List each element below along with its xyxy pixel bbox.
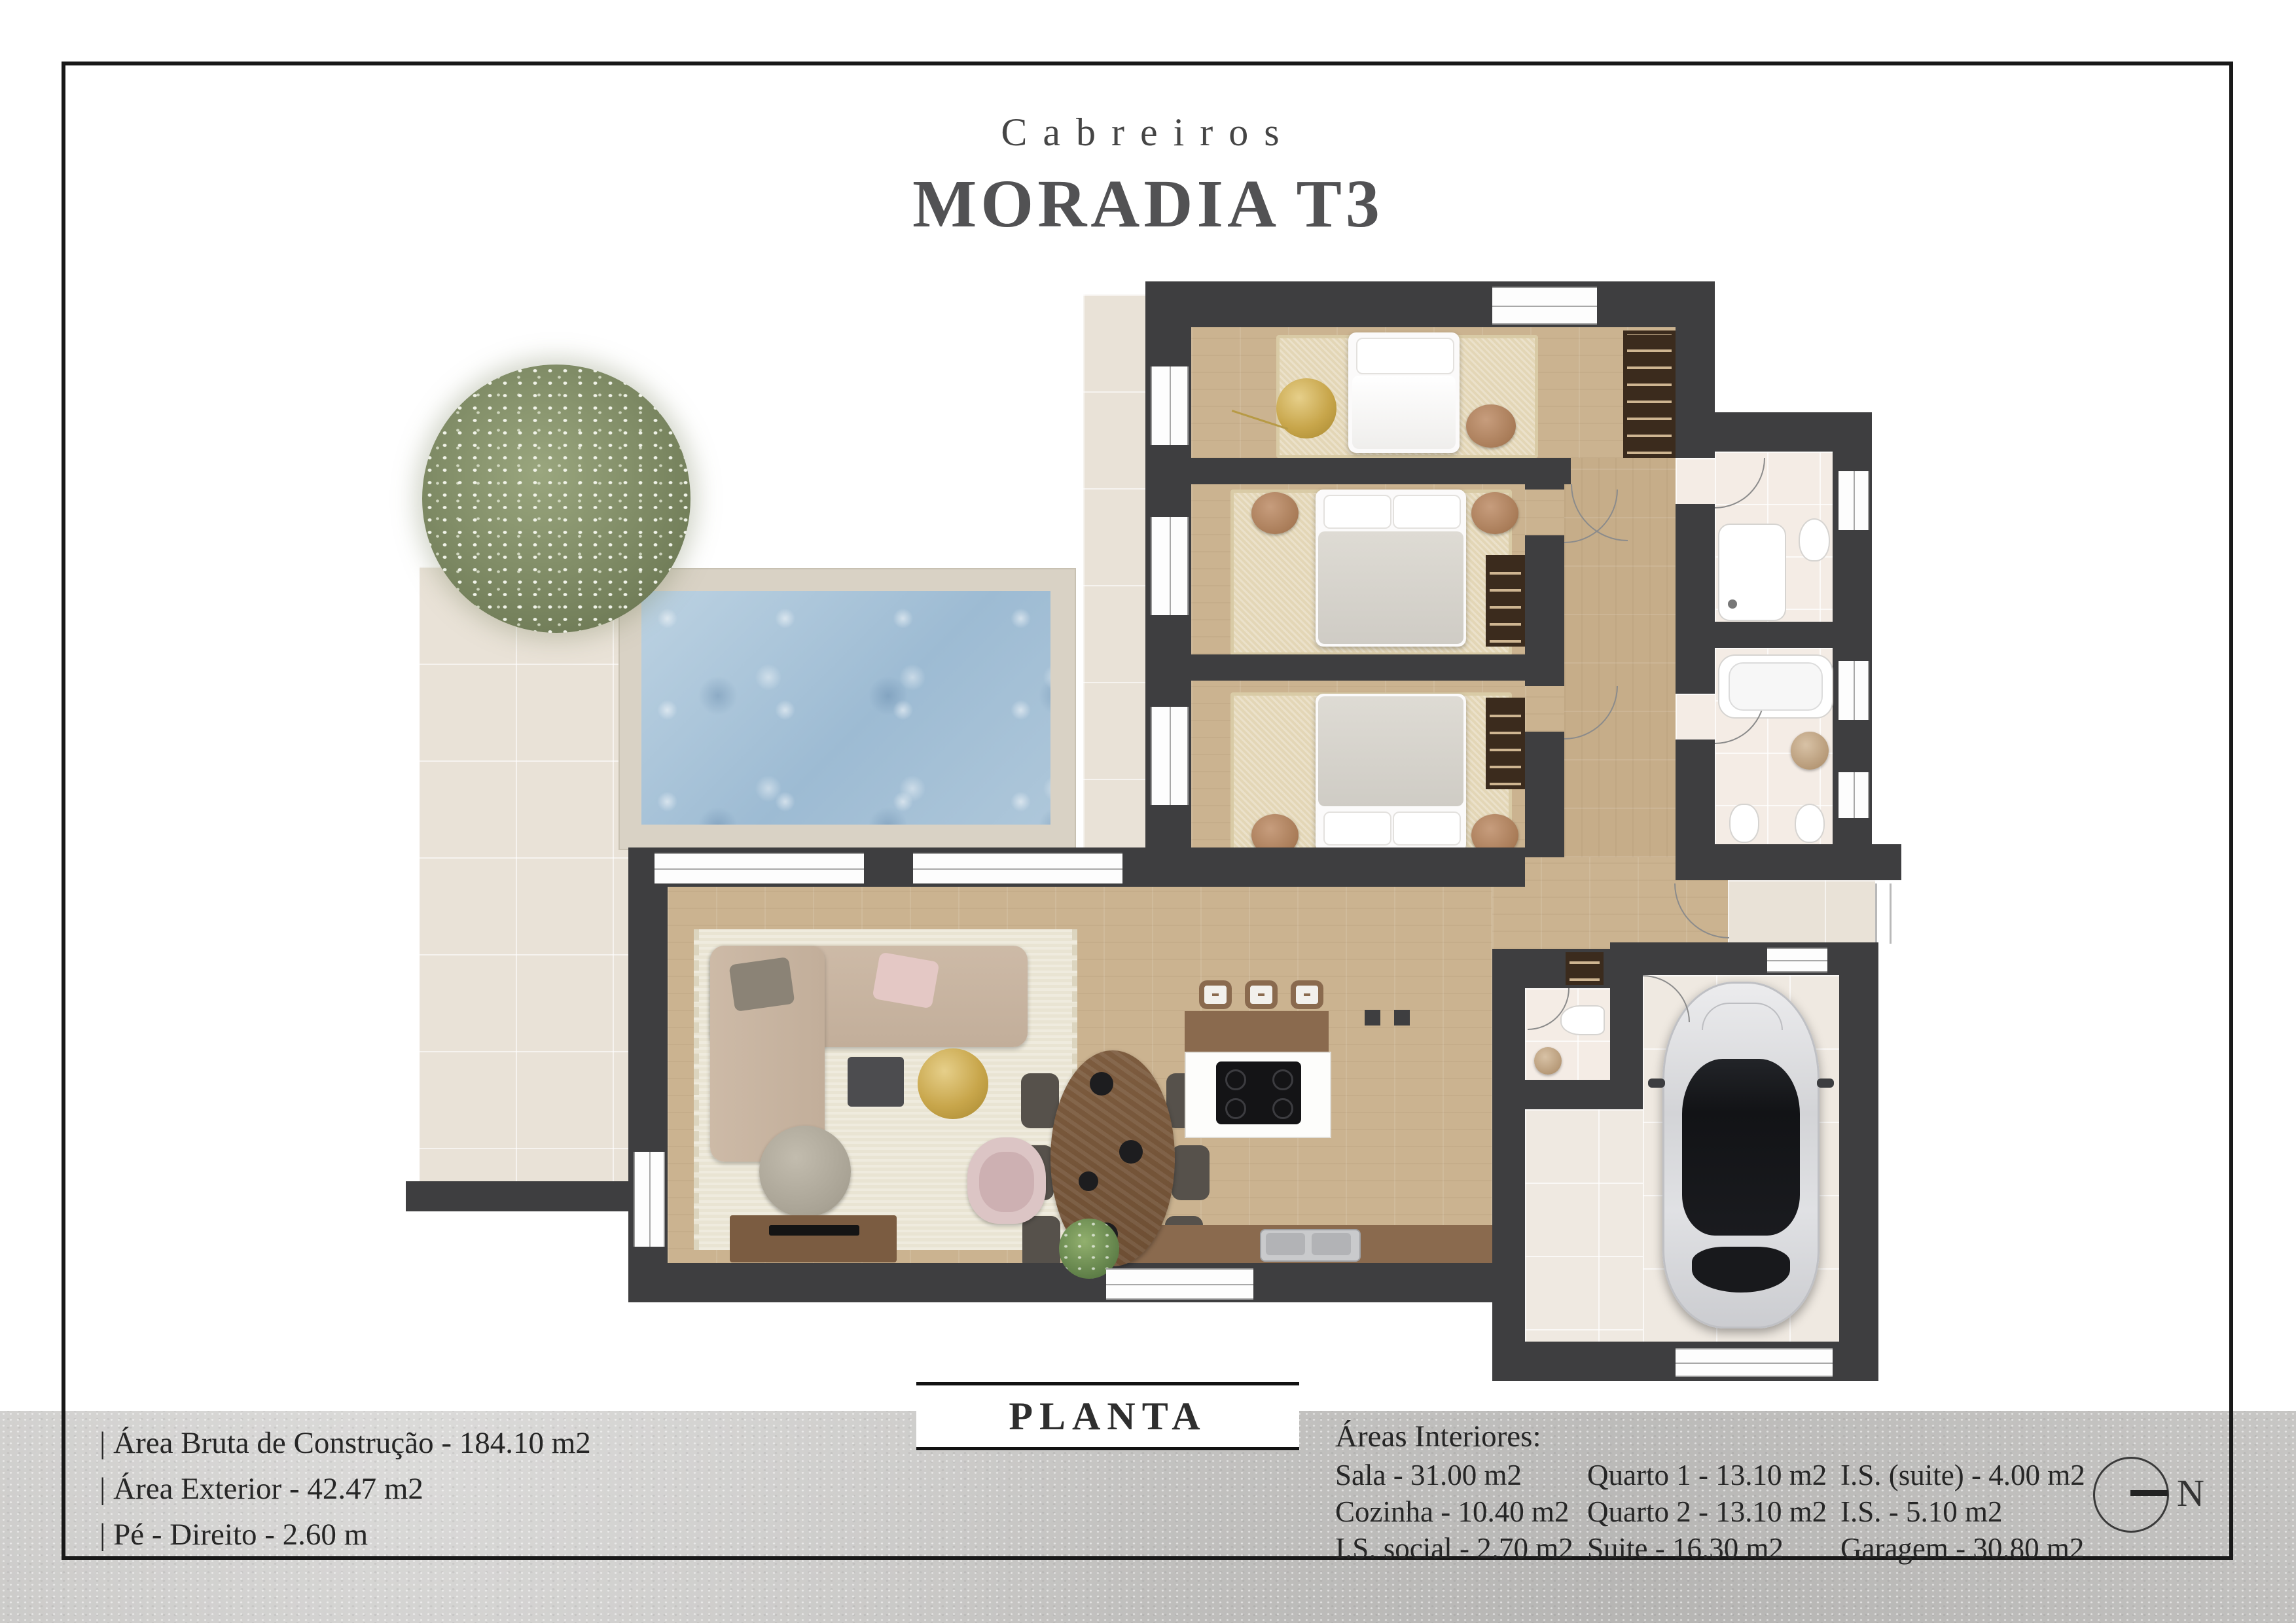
area-is: I.S. - 5.10 m2 bbox=[1840, 1495, 2003, 1529]
area-garagem: Garagem - 30.80 m2 bbox=[1840, 1531, 2084, 1565]
q2-door-gap bbox=[1525, 686, 1564, 732]
wall-bath-bottom bbox=[1676, 844, 1901, 880]
area-is-social: I.S. social - 2.70 m2 bbox=[1335, 1531, 1573, 1565]
dining-chair bbox=[1021, 1073, 1059, 1128]
q1-door-gap bbox=[1525, 490, 1564, 535]
area-suite: Suite - 16.30 m2 bbox=[1587, 1531, 1784, 1565]
plate bbox=[1079, 1171, 1098, 1191]
areas-heading: Áreas Interiores: bbox=[1335, 1419, 1541, 1454]
burner bbox=[1225, 1098, 1246, 1119]
quarto2-pillow bbox=[1393, 811, 1461, 846]
garage-entry-door bbox=[1767, 948, 1827, 972]
quarto1-pillow bbox=[1323, 495, 1391, 529]
wc-toilet bbox=[1560, 1005, 1605, 1035]
bar-stool bbox=[1199, 980, 1232, 1009]
burner bbox=[1272, 1069, 1293, 1090]
sofa-throw bbox=[848, 1057, 904, 1107]
plan-label: PLANTA bbox=[916, 1382, 1299, 1450]
burner bbox=[1272, 1098, 1293, 1119]
car-mirror bbox=[1648, 1079, 1665, 1088]
wall-garage-top bbox=[1610, 942, 1878, 975]
garage-floor-l bbox=[1525, 1109, 1643, 1342]
patio-left bbox=[419, 567, 628, 1211]
wall-suite-q1 bbox=[1191, 458, 1571, 484]
wall-living-right bbox=[1492, 949, 1525, 1302]
quarto1-nightstand bbox=[1471, 492, 1518, 534]
bath-suite-window bbox=[1838, 471, 1869, 530]
toilet bbox=[1795, 804, 1825, 843]
tv bbox=[769, 1225, 859, 1236]
car-mirror bbox=[1817, 1079, 1834, 1088]
page-title: MORADIA T3 bbox=[0, 165, 2296, 243]
sink-basin bbox=[1312, 1233, 1351, 1255]
area-sala: Sala - 31.00 m2 bbox=[1335, 1458, 1522, 1492]
bath-round-basin bbox=[1791, 732, 1829, 770]
toilet bbox=[1799, 518, 1830, 562]
quarto1-duvet bbox=[1318, 531, 1463, 644]
plate bbox=[1090, 1072, 1113, 1096]
info-line-area-bruta: | Área Bruta de Construção - 184.10 m2 bbox=[99, 1420, 591, 1466]
living-window bbox=[913, 853, 1122, 884]
quarto2-wardrobe bbox=[1486, 698, 1525, 789]
pool-water bbox=[641, 591, 1050, 825]
quarto1-nightstand bbox=[1251, 492, 1299, 534]
bath-window bbox=[1838, 772, 1869, 818]
bidet bbox=[1729, 804, 1759, 843]
wc-basin bbox=[1534, 1047, 1562, 1075]
suite-pillow bbox=[1356, 338, 1454, 374]
wall-stub bbox=[1394, 1010, 1410, 1026]
terrace-door bbox=[634, 1152, 665, 1247]
area-quarto1: Quarto 1 - 13.10 m2 bbox=[1587, 1458, 1827, 1492]
plate bbox=[1119, 1140, 1143, 1164]
wall-wing-top bbox=[1145, 281, 1682, 327]
dining-chair bbox=[1172, 1145, 1210, 1200]
suite-nightstand bbox=[1466, 404, 1516, 448]
bar-stool bbox=[1245, 980, 1278, 1009]
compass-north-label: N bbox=[2177, 1471, 2204, 1515]
porch-floor bbox=[1728, 880, 1875, 946]
exterior-info: | Área Bruta de Construção - 184.10 m2 |… bbox=[99, 1420, 591, 1558]
bath-door-gap bbox=[1676, 694, 1715, 740]
area-quarto2: Quarto 2 - 13.10 m2 bbox=[1587, 1495, 1827, 1529]
quarto1-pillow bbox=[1393, 495, 1461, 529]
quarto2-left-window bbox=[1151, 707, 1189, 805]
area-is-suite: I.S. (suite) - 4.00 m2 bbox=[1840, 1458, 2085, 1492]
suite-wardrobe bbox=[1623, 330, 1676, 458]
wall-bath-divider bbox=[1715, 622, 1833, 648]
suite-duvet bbox=[1352, 376, 1456, 449]
quarto1-wardrobe bbox=[1486, 555, 1525, 647]
tv-console bbox=[730, 1215, 897, 1262]
tree bbox=[422, 365, 691, 633]
car-hood-line bbox=[1702, 1003, 1783, 1030]
suite-top-window bbox=[1492, 287, 1597, 325]
porch-steps bbox=[1875, 883, 1901, 944]
garden-wall bbox=[406, 1181, 645, 1211]
info-line-pe-direito: | Pé - Direito - 2.60 m bbox=[99, 1512, 591, 1558]
wall-bath-corridor bbox=[1676, 452, 1715, 857]
bathtub-basin bbox=[1729, 662, 1823, 711]
bath-window bbox=[1838, 661, 1869, 720]
wall-q1-q2 bbox=[1191, 654, 1525, 681]
armchair-seat bbox=[979, 1152, 1034, 1212]
quarto1-left-window bbox=[1151, 517, 1189, 615]
sofa-cushion-gray bbox=[728, 957, 795, 1012]
quarto2-pillow bbox=[1323, 811, 1391, 846]
car-glass bbox=[1682, 1059, 1800, 1236]
compass-needle-icon bbox=[2130, 1490, 2168, 1496]
floor-plan bbox=[0, 0, 2296, 1623]
hall-closet bbox=[1566, 952, 1604, 985]
car-rear-glass bbox=[1692, 1247, 1790, 1293]
bath-suite-door-gap bbox=[1676, 458, 1715, 504]
living-window bbox=[655, 853, 864, 884]
location-title: Cabreiros bbox=[0, 110, 2296, 155]
kitchen-island-top bbox=[1185, 1011, 1329, 1052]
coffee-table bbox=[759, 1126, 851, 1217]
floorplan-sheet: { "header": { "location": "Cabreiros", "… bbox=[0, 0, 2296, 1623]
bar-stool bbox=[1291, 980, 1323, 1009]
quarto2-duvet bbox=[1318, 696, 1463, 806]
wall-rooms-corridor bbox=[1525, 484, 1564, 857]
kitchen-window bbox=[1106, 1268, 1253, 1300]
suite-ceiling-fan bbox=[1276, 378, 1336, 438]
wall-stub bbox=[1145, 281, 1186, 322]
gold-side-table bbox=[918, 1048, 988, 1119]
info-line-area-exterior: | Área Exterior - 42.47 m2 bbox=[99, 1466, 591, 1512]
shower-drain bbox=[1728, 599, 1737, 609]
suite-left-window bbox=[1151, 366, 1189, 445]
wall-stub bbox=[1365, 1010, 1380, 1026]
garage-door bbox=[1676, 1348, 1833, 1377]
wall-garage-right bbox=[1839, 942, 1878, 1381]
area-cozinha: Cozinha - 10.40 m2 bbox=[1335, 1495, 1569, 1529]
sink-basin bbox=[1266, 1233, 1305, 1255]
burner bbox=[1225, 1069, 1246, 1090]
patio-right-strip bbox=[1083, 294, 1145, 857]
